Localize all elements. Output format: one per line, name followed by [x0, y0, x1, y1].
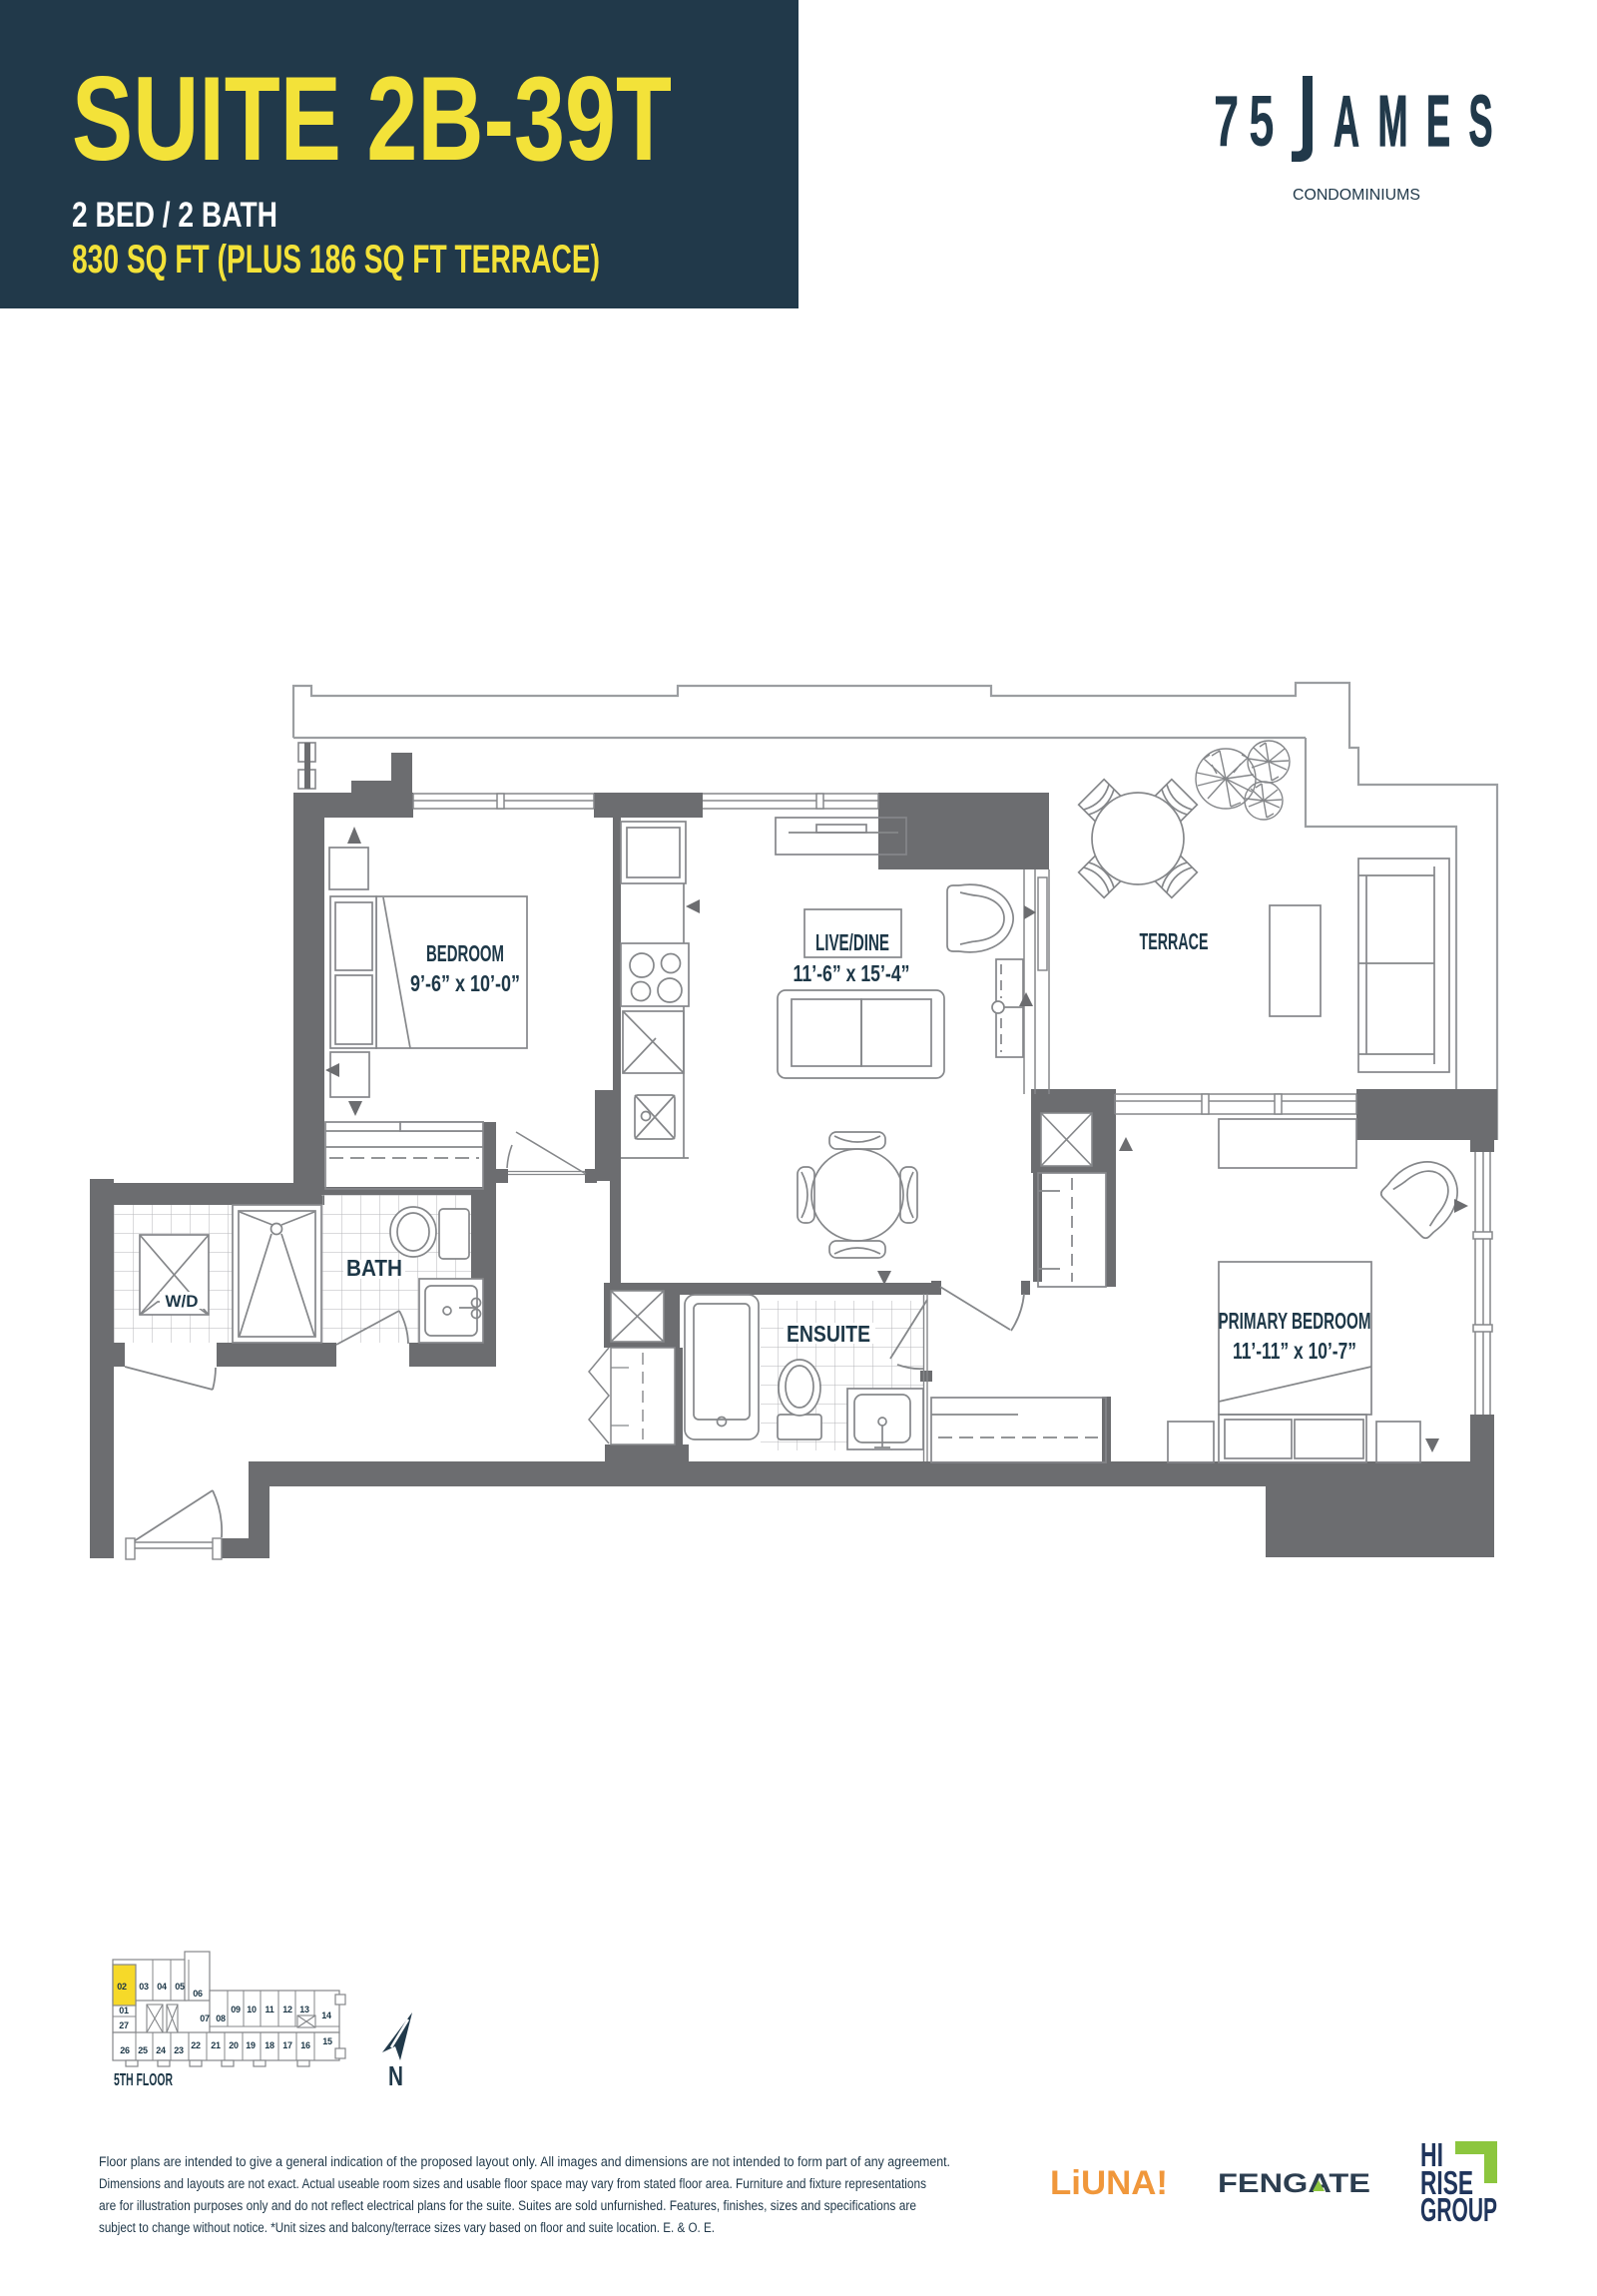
svg-text:11’-6” x 15’-4”: 11’-6” x 15’-4”	[794, 960, 910, 986]
svg-text:AMES: AMES	[1333, 81, 1511, 162]
svg-text:02: 02	[117, 1982, 127, 1992]
svg-text:27: 27	[119, 2020, 129, 2030]
svg-text:13: 13	[299, 2005, 309, 2014]
svg-text:16: 16	[300, 2040, 310, 2050]
svg-text:06: 06	[193, 1989, 203, 1999]
svg-text:08: 08	[216, 2013, 226, 2023]
svg-text:are for illustration purposes: are for illustration purposes only and d…	[99, 2198, 916, 2213]
svg-text:5TH FLOOR: 5TH FLOOR	[114, 2069, 173, 2089]
svg-text:N: N	[388, 2060, 403, 2091]
svg-text:FENGATE: FENGATE	[1218, 2168, 1370, 2198]
svg-text:09: 09	[231, 2005, 241, 2014]
svg-text:04: 04	[157, 1982, 167, 1992]
svg-text:25: 25	[138, 2045, 148, 2055]
svg-text:LIVE/DINE: LIVE/DINE	[815, 929, 889, 955]
svg-text:14: 14	[321, 2010, 331, 2020]
svg-text:75: 75	[1214, 81, 1285, 161]
svg-text:CONDOMINIUMS: CONDOMINIUMS	[1293, 187, 1420, 204]
svg-text:BATH: BATH	[346, 1255, 402, 1281]
svg-text:11’-11” x 10’-7”: 11’-11” x 10’-7”	[1233, 1338, 1356, 1364]
svg-text:LiUNA!: LiUNA!	[1050, 2164, 1168, 2202]
svg-text:830 SQ FT (PLUS 186 SQ FT TERR: 830 SQ FT (PLUS 186 SQ FT TERRACE)	[72, 238, 600, 282]
svg-text:SUITE 2B-39T: SUITE 2B-39T	[72, 52, 672, 186]
svg-text:01: 01	[119, 2006, 129, 2015]
svg-text:15: 15	[322, 2036, 332, 2046]
svg-text:BEDROOM: BEDROOM	[426, 940, 504, 966]
svg-text:TERRACE: TERRACE	[1140, 928, 1209, 954]
svg-text:Floor plans are intended to gi: Floor plans are intended to give a gener…	[99, 2154, 950, 2169]
svg-text:19: 19	[246, 2040, 256, 2050]
svg-text:18: 18	[265, 2040, 274, 2050]
svg-text:GROUP: GROUP	[1420, 2191, 1497, 2228]
svg-text:17: 17	[282, 2040, 292, 2050]
svg-text:9’-6” x 10’-0”: 9’-6” x 10’-0”	[410, 970, 520, 996]
svg-text:07: 07	[200, 2013, 210, 2023]
svg-text:12: 12	[282, 2005, 292, 2014]
svg-text:23: 23	[174, 2045, 184, 2055]
svg-text:05: 05	[175, 1982, 185, 1992]
svg-text:22: 22	[191, 2040, 201, 2050]
svg-text:PRIMARY BEDROOM: PRIMARY BEDROOM	[1219, 1308, 1371, 1334]
svg-text:03: 03	[139, 1982, 149, 1992]
svg-text:10: 10	[247, 2005, 257, 2014]
svg-text:11: 11	[266, 2005, 274, 2014]
svg-text:26: 26	[120, 2045, 130, 2055]
svg-text:2 BED / 2 BATH: 2 BED / 2 BATH	[72, 196, 277, 235]
svg-text:Dimensions and layouts are not: Dimensions and layouts are not exact. Ac…	[99, 2176, 926, 2191]
svg-text:24: 24	[156, 2045, 166, 2055]
svg-text:ENSUITE: ENSUITE	[787, 1321, 870, 1347]
svg-text:20: 20	[229, 2040, 239, 2050]
svg-text:W/D: W/D	[166, 1292, 199, 1311]
svg-text:21: 21	[211, 2040, 221, 2050]
svg-text:subject to change without noti: subject to change without notice. *Unit …	[99, 2220, 715, 2235]
